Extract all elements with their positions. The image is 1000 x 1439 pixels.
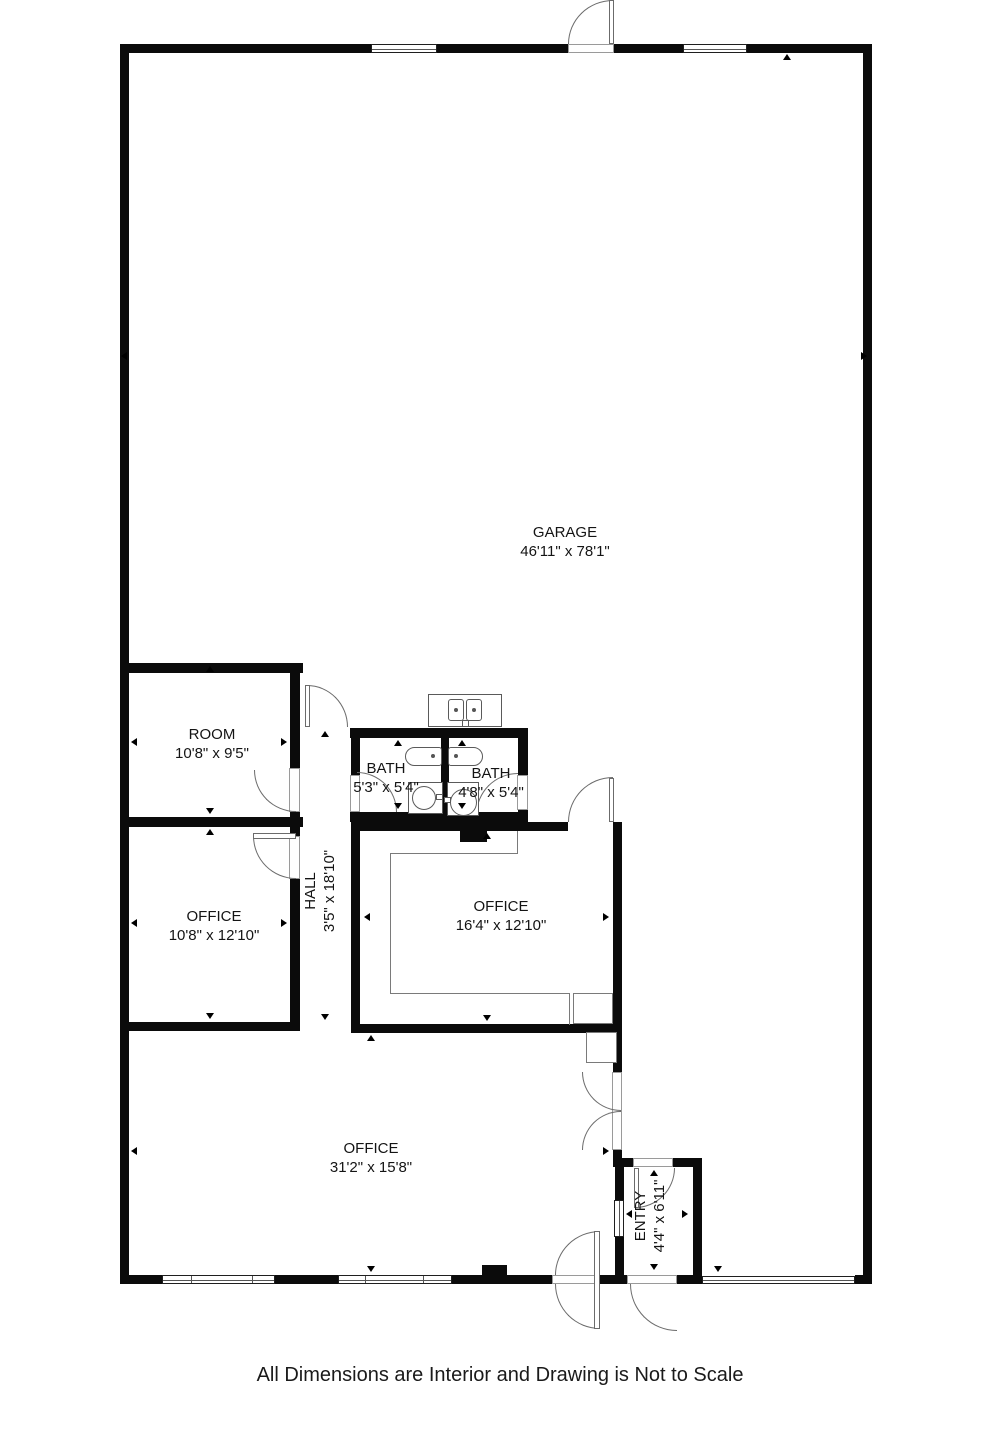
door-leaf-hall	[305, 685, 310, 727]
dimension-arrow	[458, 740, 466, 746]
room-name: OFFICE	[169, 907, 260, 926]
floor-plan: GARAGE 46'11" x 78'1" ROOM 10'8" x 9'5" …	[0, 0, 1000, 1439]
window-divider	[191, 1276, 192, 1283]
window-entry-sidelite	[614, 1200, 624, 1237]
counter-outline	[390, 853, 518, 854]
dimension-arrow	[650, 1170, 658, 1176]
flush-dot-icon	[431, 754, 435, 758]
closet-box	[586, 1032, 617, 1063]
dimension-arrow	[603, 913, 609, 921]
window-mullion	[703, 1280, 854, 1281]
counter-outline	[390, 993, 570, 994]
room-label-office-bottom: OFFICE 31'2" x 15'8"	[330, 1139, 412, 1177]
dimension-arrow	[321, 731, 329, 737]
wall-stub-bottom	[482, 1265, 507, 1275]
room-label-hall: HALL 3'5" x 18'10"	[301, 850, 339, 932]
dimension-arrow	[682, 1210, 688, 1218]
dimension-arrow	[714, 1266, 722, 1272]
room-name: OFFICE	[456, 897, 547, 916]
dimension-arrow	[206, 1013, 214, 1019]
counter-outline	[390, 853, 391, 994]
door-arc-double-lower	[582, 1111, 621, 1150]
wall-stub-bath	[460, 822, 487, 842]
wall-bath-top	[350, 728, 528, 738]
dimension-arrow	[206, 829, 214, 835]
wall-office-mid-bottom	[351, 1024, 622, 1033]
wall-bath-right-lower	[518, 810, 528, 822]
window-mullion	[619, 1201, 620, 1236]
dimension-arrow	[321, 1014, 329, 1020]
flush-dot-icon	[454, 754, 458, 758]
room-label-entry: ENTRY 4'4" x 6'11"	[631, 1180, 669, 1253]
window-mullion	[163, 1280, 274, 1281]
dimension-arrow	[483, 1015, 491, 1021]
window-mullion	[684, 49, 746, 50]
window-mullion	[339, 1280, 451, 1281]
dimension-arrow	[206, 666, 214, 672]
room-name: GARAGE	[520, 523, 610, 542]
vanity-faucet-icon	[462, 720, 469, 727]
sink-faucet-icon	[436, 794, 443, 800]
opening-entry-exterior-door	[627, 1275, 677, 1284]
room-label-room: ROOM 10'8" x 9'5"	[175, 725, 249, 763]
wall-hall-right-lower	[351, 812, 360, 1033]
room-dims: 31'2" x 15'8"	[330, 1158, 412, 1177]
opening-garage-top-door	[568, 44, 614, 53]
dimension-arrow	[783, 54, 791, 60]
room-dims: 4'4" x 6'11"	[650, 1180, 669, 1253]
window-divider	[365, 1276, 366, 1283]
room-label-office-mid: OFFICE 16'4" x 12'10"	[456, 897, 547, 935]
room-dims: 10'8" x 12'10"	[169, 926, 260, 945]
room-dims: 16'4" x 12'10"	[456, 916, 547, 935]
window-divider	[423, 1276, 424, 1283]
plan-caption: All Dimensions are Interior and Drawing …	[0, 1364, 1000, 1387]
wall-hall-left-upper	[290, 663, 300, 768]
door-arc-hall	[307, 685, 348, 727]
wall-hall-left-lower	[290, 879, 300, 1031]
window-mullion	[372, 49, 436, 50]
room-name: BATH	[353, 759, 419, 778]
window-top-left	[371, 44, 437, 53]
wall-leftcol-bottom	[120, 1022, 298, 1031]
room-dims: 3'5" x 18'10"	[320, 850, 339, 932]
room-label-bath-left: BATH 5'3" x 5'4"	[353, 759, 419, 797]
door-leaf-office-left	[253, 833, 296, 839]
opening-exterior-door	[552, 1275, 600, 1284]
room-name: ENTRY	[631, 1180, 650, 1253]
wall-outer-right	[863, 44, 872, 1284]
counter-outline	[569, 993, 570, 1025]
window-divider	[252, 1276, 253, 1283]
dimension-arrow	[861, 352, 867, 360]
wall-entry-right	[693, 1158, 702, 1284]
door-arc-entry-exterior	[630, 1284, 677, 1331]
room-dims: 10'8" x 9'5"	[175, 744, 249, 763]
drain-dot-icon	[472, 708, 476, 712]
dimension-arrow	[206, 808, 214, 814]
door-arc-office-mid	[568, 777, 613, 822]
room-dims: 5'3" x 5'4"	[353, 778, 419, 797]
dimension-arrow	[458, 803, 466, 809]
door-leaf-office-mid	[609, 778, 614, 822]
window-bottom-group-b	[338, 1275, 452, 1284]
dimension-arrow	[603, 1147, 609, 1155]
dimension-arrow	[483, 833, 491, 839]
dimension-arrow	[650, 1264, 658, 1270]
dimension-arrow	[367, 1266, 375, 1272]
room-name: BATH	[458, 764, 524, 783]
dimension-arrow	[131, 919, 137, 927]
dimension-arrow	[281, 919, 287, 927]
drain-dot-icon	[454, 708, 458, 712]
room-label-bath-right: BATH 4'8" x 5'4"	[458, 764, 524, 802]
door-leaf-garage-top	[609, 0, 614, 44]
garage-door-band	[702, 1276, 855, 1284]
window-bottom-group-a	[162, 1275, 275, 1284]
dimension-arrow	[394, 740, 402, 746]
room-label-garage: GARAGE 46'11" x 78'1"	[520, 523, 610, 561]
window-top-right	[683, 44, 747, 53]
door-leaf-exterior	[594, 1231, 600, 1329]
door-arc-office-left	[253, 836, 296, 879]
room-dims: 46'11" x 78'1"	[520, 542, 610, 561]
wall-room-office-divider	[120, 817, 303, 827]
sink-faucet-icon	[444, 797, 451, 803]
room-name: OFFICE	[330, 1139, 412, 1158]
room-dims: 4'8" x 5'4"	[458, 783, 524, 802]
door-arc-double-upper	[582, 1072, 621, 1111]
door-arc-garage-top	[568, 0, 613, 44]
room-label-office-left: OFFICE 10'8" x 12'10"	[169, 907, 260, 945]
dimension-arrow	[364, 913, 370, 921]
counter-outline	[517, 831, 518, 853]
dimension-arrow	[131, 738, 137, 746]
dimension-arrow	[131, 1147, 137, 1155]
dimension-arrow	[281, 738, 287, 746]
dimension-arrow	[394, 803, 402, 809]
closet-box	[573, 993, 613, 1024]
wall-outer-top	[120, 44, 872, 53]
door-arc-room	[254, 770, 296, 812]
opening-entry-top-door	[633, 1158, 673, 1167]
dimension-arrow	[121, 352, 127, 360]
wall-bottom-right-corner	[855, 1275, 872, 1284]
room-name: HALL	[301, 850, 320, 932]
dimension-arrow	[367, 1035, 375, 1041]
room-name: ROOM	[175, 725, 249, 744]
